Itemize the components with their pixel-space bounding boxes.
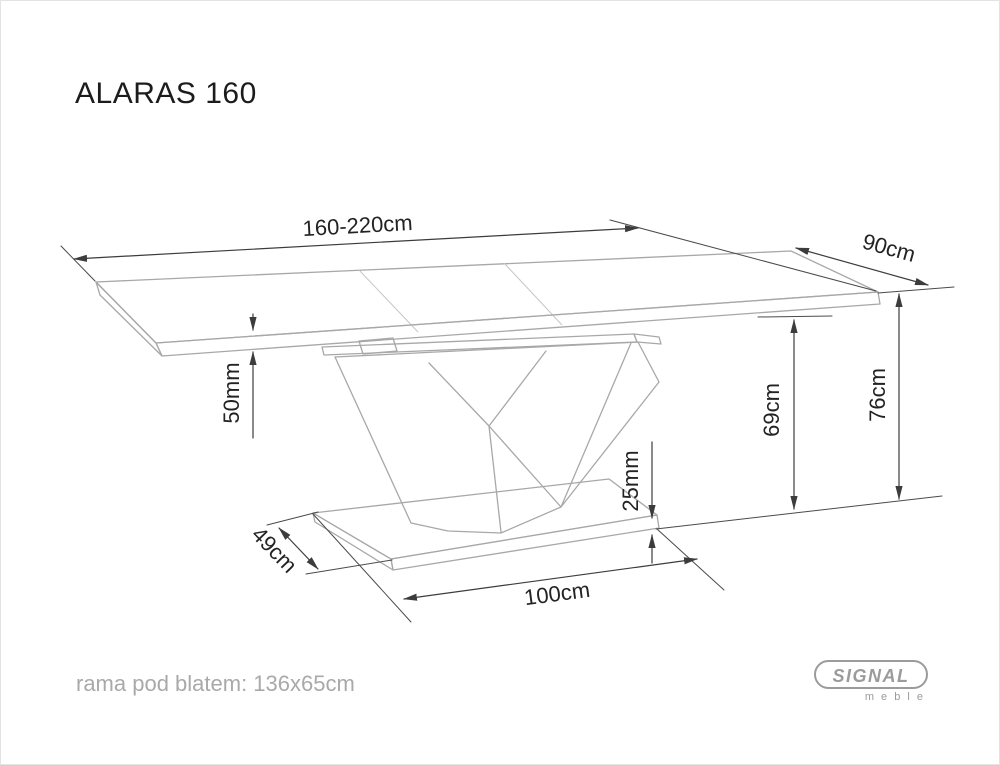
logo-brand-text: SIGNAL bbox=[832, 666, 909, 686]
pedestal-fold-lines bbox=[489, 343, 631, 532]
brand-logo: SIGNAL m e b l e bbox=[813, 659, 943, 704]
dimension-label-top-depth: 90cm bbox=[860, 229, 919, 267]
dimension-label-base-depth: 49cm bbox=[247, 522, 302, 578]
frame-under-top-note: rama pod blatem: 136x65cm bbox=[76, 671, 355, 697]
dimension-label-top-length: 160-220cm bbox=[302, 210, 413, 241]
extension-line bbox=[306, 560, 392, 574]
dimension-base-thickness: 25mm bbox=[618, 442, 652, 563]
frame-right-end bbox=[634, 334, 661, 344]
under-top-frame bbox=[322, 334, 661, 355]
pedestal-v-notch bbox=[429, 351, 546, 426]
extension-line bbox=[758, 316, 832, 317]
dimension-label-height-under-frame: 69cm bbox=[759, 383, 784, 437]
dimension-base-length: 100cm bbox=[313, 514, 724, 622]
dimension-label-base-thickness: 25mm bbox=[618, 450, 643, 511]
extension-line bbox=[313, 514, 411, 622]
dimension-height-under-frame: 69cm bbox=[758, 316, 832, 509]
tabletop-top-face bbox=[96, 251, 878, 343]
dimension-top-thickness: 50mm bbox=[219, 314, 253, 438]
ground-extension-line bbox=[656, 496, 942, 529]
extension-line bbox=[61, 246, 95, 281]
frame-front-face bbox=[322, 334, 637, 355]
dimension-label-top-thickness: 50mm bbox=[219, 362, 244, 423]
extension-line bbox=[267, 512, 318, 525]
extension-line bbox=[878, 287, 954, 293]
dimension-base-depth: 49cm bbox=[247, 512, 392, 578]
base-plate bbox=[313, 479, 659, 570]
table-dimension-drawing: 160-220cm 90cm 50mm 69cm 76cm 25mm bbox=[1, 1, 1000, 765]
tabletop-left-end bbox=[96, 282, 162, 356]
base-top-face bbox=[313, 479, 657, 559]
dimension-label-total-height: 76cm bbox=[865, 368, 890, 422]
dimension-total-height: 76cm bbox=[656, 294, 942, 529]
dimension-top-depth: 90cm bbox=[796, 229, 954, 293]
logo-subtext: m e b l e bbox=[865, 691, 925, 703]
diagram-page: ALARAS 160 bbox=[0, 0, 1000, 765]
extension-line bbox=[610, 220, 876, 291]
dimension-top-length: 160-220cm bbox=[61, 210, 876, 291]
